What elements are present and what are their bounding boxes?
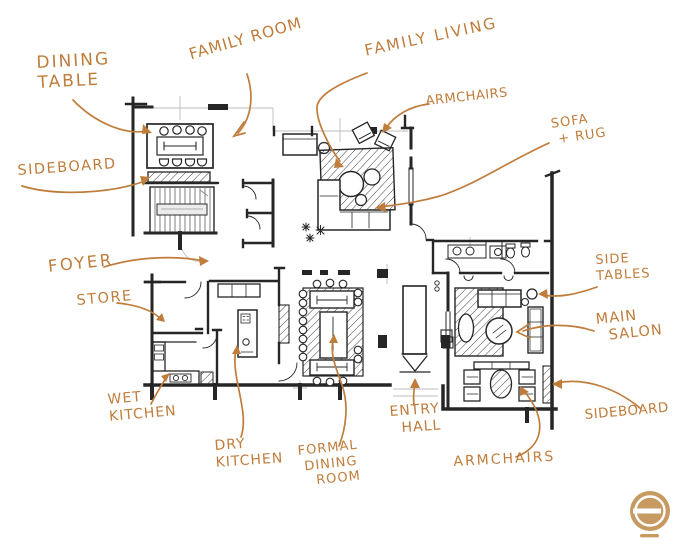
kitchen-console	[218, 284, 260, 297]
entry-hall-furniture	[400, 281, 453, 372]
oval-table	[459, 314, 474, 342]
salon-sofa	[478, 290, 521, 307]
bench	[528, 307, 543, 353]
bathroom-fixtures	[448, 241, 530, 258]
arrow-foyer	[104, 258, 204, 267]
arrow-family-living	[317, 73, 367, 161]
arrow-family-room	[238, 74, 251, 133]
side-table-2	[522, 299, 529, 306]
entry-console	[403, 286, 426, 354]
logo-mark	[630, 491, 670, 537]
floor-plan-sketch	[0, 0, 685, 550]
arrowhead-family-room	[234, 122, 245, 136]
sideboard-wall	[279, 305, 289, 343]
arrow-store	[117, 303, 160, 318]
kitchen-island	[238, 310, 257, 357]
formal-dining-furniture	[279, 279, 363, 386]
oval-table-hatched	[491, 370, 512, 398]
arrow-dry-kitchen	[235, 350, 244, 437]
staircase	[150, 187, 214, 233]
side-table-1	[527, 289, 537, 299]
round-table	[486, 318, 512, 344]
family-living-furniture	[283, 122, 396, 242]
arrow-sofa-rug	[381, 143, 549, 207]
sketch-page: DINING TABLE FAMILY ROOM FAMILY LIVING A…	[0, 0, 685, 550]
small-table	[356, 195, 367, 206]
dry-kitchen-furniture	[218, 284, 260, 357]
armchair-1	[352, 122, 374, 143]
door-mat	[201, 372, 213, 384]
coffee-table	[339, 172, 364, 197]
family-room-furniture	[143, 124, 218, 183]
sideboard-salon	[543, 366, 552, 403]
arrow-sideboard-right	[557, 381, 641, 409]
arrow-armchairs-top	[387, 104, 429, 127]
salon-console	[474, 362, 529, 369]
side-table-round	[364, 169, 380, 185]
arrow-sideboard-left	[22, 181, 145, 192]
sideboard-top	[148, 172, 210, 182]
main-salon-furniture	[441, 276, 552, 403]
